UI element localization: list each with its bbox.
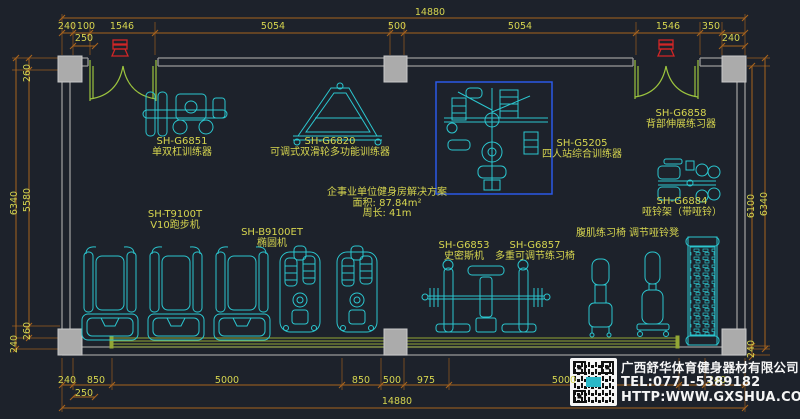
equipment-label: 腹肌练习椅 bbox=[576, 228, 626, 239]
equipment-label: SH-B9100ET椭圆机 bbox=[241, 227, 303, 249]
equipment-model: SH-G5205 bbox=[542, 138, 622, 149]
dimension-label: 5000 bbox=[215, 376, 239, 386]
company-website: HTTP:WWW.GXSHUA.COM bbox=[621, 391, 800, 405]
dimension-label: 100 bbox=[77, 22, 95, 32]
equipment-label: SH-G6858背部伸展练习器 bbox=[646, 108, 716, 130]
solution-text-block: 企事业单位健身房解决方案 面积: 87.84m² 周长: 41m bbox=[327, 188, 447, 220]
dumbbell-rack-icon bbox=[686, 237, 719, 345]
equipment-label: SH-G6853史密斯机 bbox=[438, 240, 489, 262]
equipment-name: 腹肌练习椅 bbox=[576, 228, 626, 239]
equipment-model: SH-T9100T bbox=[148, 209, 202, 220]
dimension-label: 240 bbox=[722, 34, 740, 44]
treadmill-icon bbox=[82, 247, 138, 340]
equipment-label: SH-G6884哑铃架（带哑铃） bbox=[642, 196, 722, 218]
equipment-name: V10跑步机 bbox=[148, 220, 202, 231]
equipment-model: SH-G6820 bbox=[270, 136, 390, 147]
equipment-model: SH-B9100ET bbox=[241, 227, 303, 238]
dimension-label: 6100 bbox=[747, 194, 757, 218]
dimension-label: 5054 bbox=[508, 22, 532, 32]
dimension-label: 850 bbox=[352, 376, 370, 386]
equipment-label: SH-G6820可调式双滑轮多功能训练器 bbox=[270, 136, 390, 158]
dimension-label: 6340 bbox=[10, 191, 20, 215]
equipment-model: SH-G6853 bbox=[438, 240, 489, 251]
dimension-label: 260 bbox=[23, 64, 33, 82]
dimension-label: 260 bbox=[23, 322, 33, 340]
dimension-label: 850 bbox=[87, 376, 105, 386]
equipment-name: 四人站综合训练器 bbox=[542, 149, 622, 160]
dimension-label: 240 bbox=[58, 376, 76, 386]
company-tel: TEL:0771-5389182 bbox=[621, 376, 760, 390]
dimension-label: 250 bbox=[75, 389, 93, 399]
dimension-label: 240 bbox=[10, 335, 20, 353]
dimension-label: 240 bbox=[747, 340, 757, 358]
company-name: 广西舒华体育健身器材有限公司 bbox=[621, 361, 799, 375]
dimension-label: 240 bbox=[58, 22, 76, 32]
dimension-label: 5580 bbox=[23, 188, 33, 212]
equipment-label: SH-G6851单双杠训练器 bbox=[152, 136, 212, 158]
elliptical-icon bbox=[337, 246, 377, 332]
adjustable-bench-icon bbox=[637, 252, 669, 337]
double-door-right bbox=[635, 60, 698, 99]
dimension-label: 975 bbox=[417, 376, 435, 386]
equipment-model: SH-G6858 bbox=[646, 108, 716, 119]
treadmill-icon bbox=[148, 247, 204, 340]
equipment-model: SH-G6884 bbox=[642, 196, 722, 207]
dimension-label: 250 bbox=[75, 34, 93, 44]
equipment-label: SH-G5205四人站综合训练器 bbox=[542, 138, 622, 160]
equipment-model: SH-G6857 bbox=[495, 240, 575, 251]
equipment-label: SH-T9100TV10跑步机 bbox=[148, 209, 202, 231]
selection-highlight-box bbox=[436, 82, 552, 194]
equipment-name: 单双杠训练器 bbox=[152, 147, 212, 158]
equipment-name: 背部伸展练习器 bbox=[646, 119, 716, 130]
four-station-multi-gym-icon bbox=[444, 88, 548, 190]
equipment-model: SH-G6851 bbox=[152, 136, 212, 147]
equipment-name: 哑铃架（带哑铃） bbox=[642, 207, 722, 218]
dimension-label: 5054 bbox=[261, 22, 285, 32]
elliptical-icon bbox=[280, 246, 320, 332]
qr-code bbox=[570, 358, 617, 406]
equipment-name: 可调式双滑轮多功能训练器 bbox=[270, 147, 390, 158]
solution-title: 企事业单位健身房解决方案 bbox=[327, 188, 447, 199]
dimension-label: 6340 bbox=[760, 192, 770, 216]
dimension-label: 350 bbox=[702, 22, 720, 32]
equipment-label: SH-G6857多重可调节练习椅 bbox=[495, 240, 575, 262]
dimension-label: 5000 bbox=[552, 376, 576, 386]
dimension-label: 14880 bbox=[415, 8, 445, 18]
door-marker-icon bbox=[112, 40, 674, 56]
dimension-label: 1546 bbox=[110, 22, 134, 32]
ab-exercise-chair-icon bbox=[589, 259, 612, 337]
dimension-label: 14880 bbox=[382, 397, 412, 407]
dimension-label: 500 bbox=[383, 376, 401, 386]
smith-machine-icon bbox=[422, 260, 550, 332]
equipment-label: 调节哑铃凳 bbox=[629, 228, 679, 239]
equipment-name: 椭圆机 bbox=[241, 238, 303, 249]
dimension-label: 1546 bbox=[656, 22, 680, 32]
equipment-name: 多重可调节练习椅 bbox=[495, 251, 575, 262]
solution-perimeter: 周长: 41m bbox=[327, 209, 447, 220]
dimension-label: 500 bbox=[388, 22, 406, 32]
floor-plan-canvas: 1488024010015465054500505415463502502406… bbox=[0, 0, 800, 419]
equipment-name: 史密斯机 bbox=[438, 251, 489, 262]
treadmill-icon bbox=[214, 247, 270, 340]
equipment-name: 调节哑铃凳 bbox=[629, 228, 679, 239]
